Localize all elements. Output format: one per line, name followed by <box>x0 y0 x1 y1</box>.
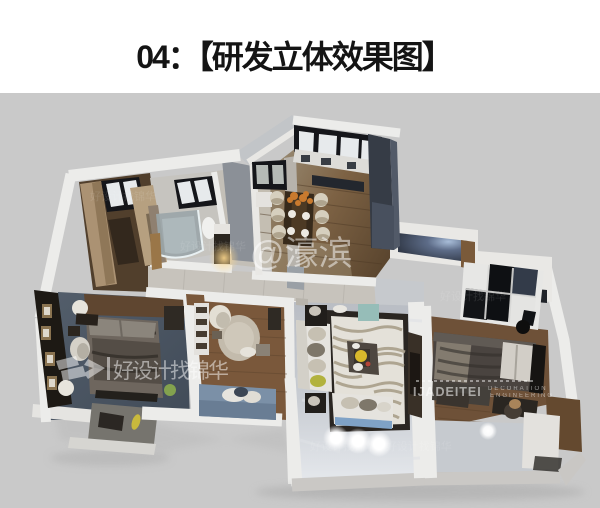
svg-text:好设计找锦华: 好设计找锦华 <box>180 239 246 253</box>
svg-text:好设计找锦华: 好设计找锦华 <box>440 289 506 303</box>
svg-text:好设计找锦华: 好设计找锦华 <box>113 360 228 383</box>
svg-text:好设计找锦华: 好设计找锦华 <box>90 189 156 203</box>
svg-text:04：【研发立体效果图】: 04：【研发立体效果图】 <box>136 39 452 75</box>
svg-text:IJADEITEI: IJADEITEI <box>413 385 482 399</box>
svg-text:DECORATION: DECORATION <box>488 386 548 392</box>
svg-text:@濠滨: @濠滨 <box>250 235 353 273</box>
svg-text:ENGINEERING: ENGINEERING <box>490 393 554 399</box>
svg-text:好设计找锦华 · 好设计找锦华: 好设计找锦华 · 好设计找锦华 <box>310 439 452 453</box>
